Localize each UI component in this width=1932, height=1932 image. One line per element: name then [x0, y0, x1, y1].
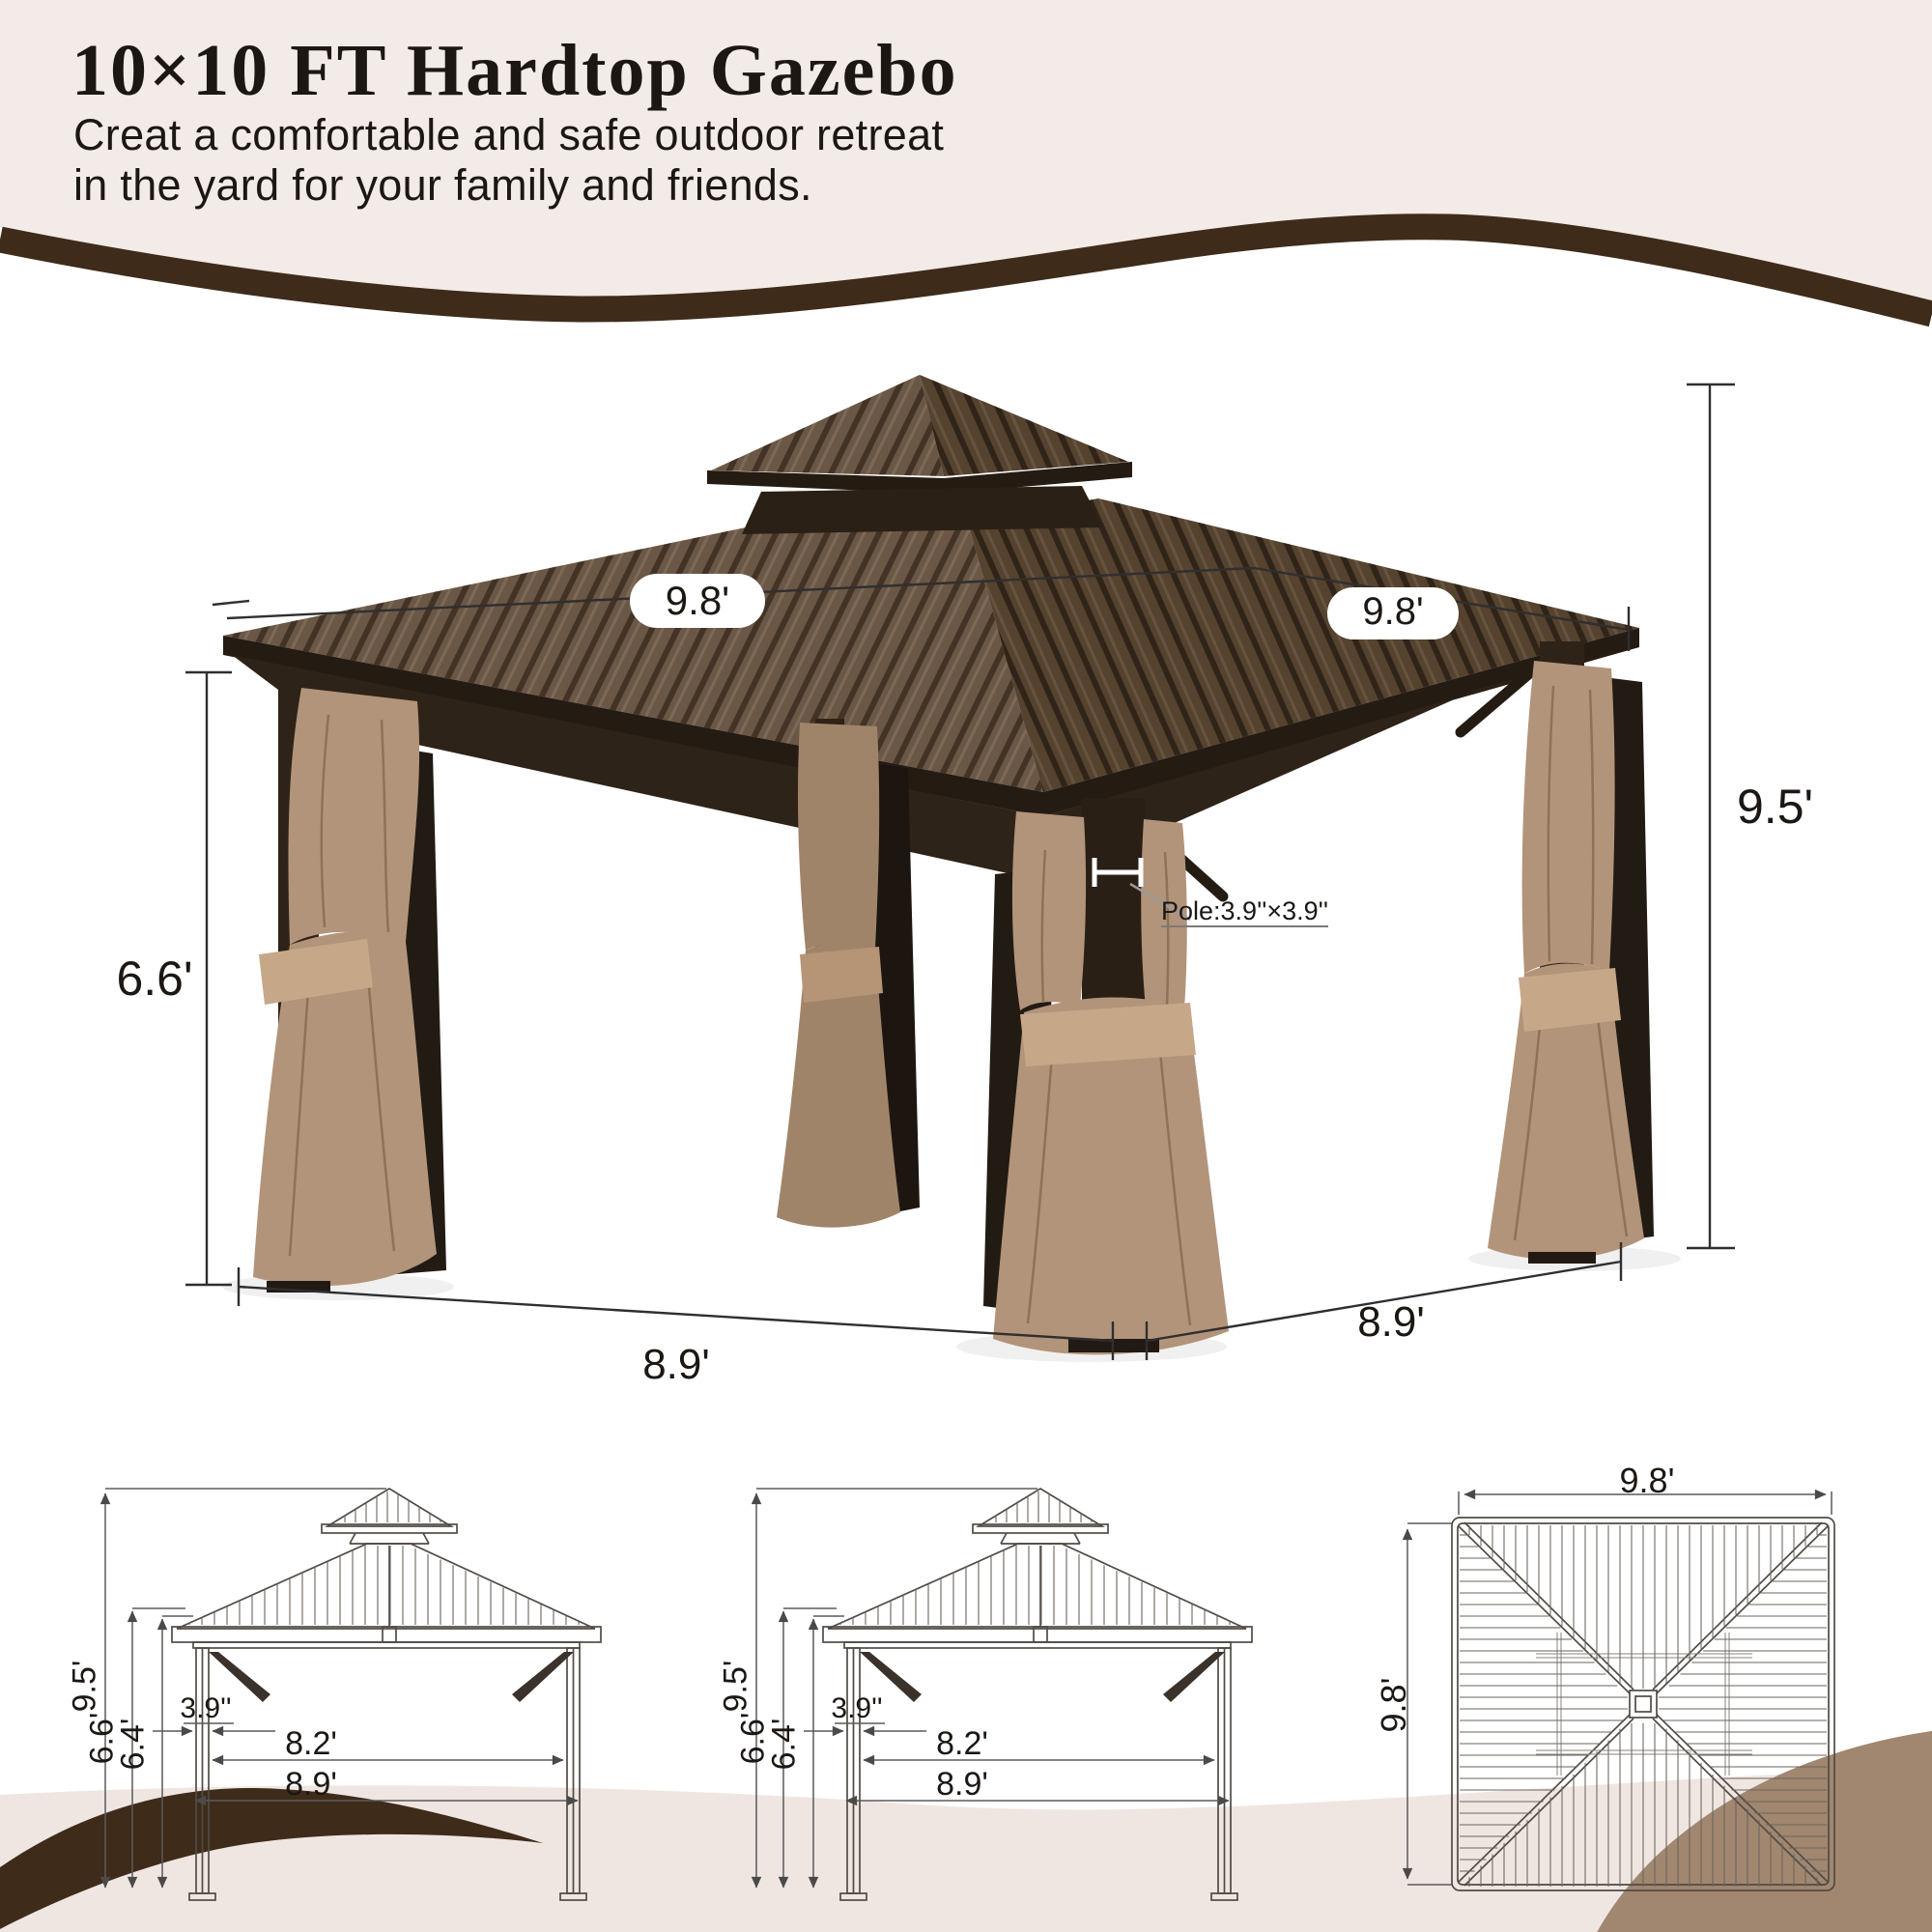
product-infographic: 10×10 FT Hardtop Gazebo Creat a comforta…: [0, 0, 1932, 1932]
gazebo-photo: [222, 375, 1681, 1362]
dim-pill-left: [630, 574, 765, 628]
artwork: [0, 0, 1932, 1932]
header-wave-shape: [0, 0, 1932, 314]
dim-pill-right: [1327, 587, 1459, 639]
